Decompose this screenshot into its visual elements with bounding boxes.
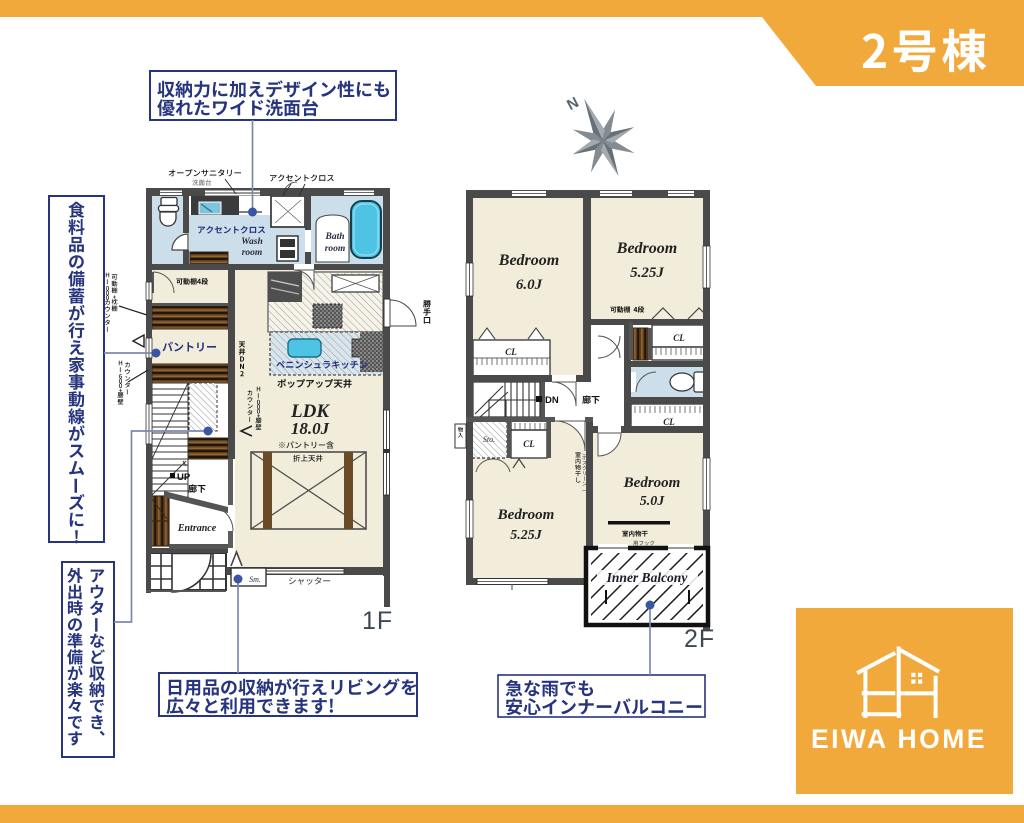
svg-text:Bath: Bath [324,232,344,242]
svg-text:2F: 2F [684,625,715,653]
svg-text:UP: UP [177,472,191,483]
svg-text:1F: 1F [362,607,393,635]
svg-text:DN: DN [545,395,559,406]
svg-text:5.25J: 5.25J [630,265,664,281]
svg-text:18.0J: 18.0J [291,419,330,438]
svg-text:room: room [325,244,346,254]
svg-text:Bedroom: Bedroom [498,252,559,269]
svg-text:5.25J: 5.25J [510,528,543,543]
svg-text:Wash: Wash [241,237,262,247]
svg-text:6.0J: 6.0J [516,277,543,293]
svg-text:Sm.: Sm. [249,575,261,584]
svg-text:CL: CL [663,417,675,427]
svg-text:Bedroom: Bedroom [497,507,555,523]
svg-text:EIWA HOME: EIWA HOME [811,724,987,754]
svg-text:room: room [242,248,263,258]
svg-text:Inner Balcony: Inner Balcony [606,570,689,585]
svg-text:5.0J: 5.0J [640,494,666,509]
svg-text:N: N [564,94,582,114]
svg-text:CL: CL [505,347,517,357]
svg-text:Sto.: Sto. [483,435,495,444]
svg-text:Entrance: Entrance [177,523,217,534]
svg-text:CL: CL [523,439,535,449]
svg-text:CL: CL [673,333,685,343]
svg-text:Bedroom: Bedroom [623,475,681,491]
svg-text:Bedroom: Bedroom [616,240,677,257]
